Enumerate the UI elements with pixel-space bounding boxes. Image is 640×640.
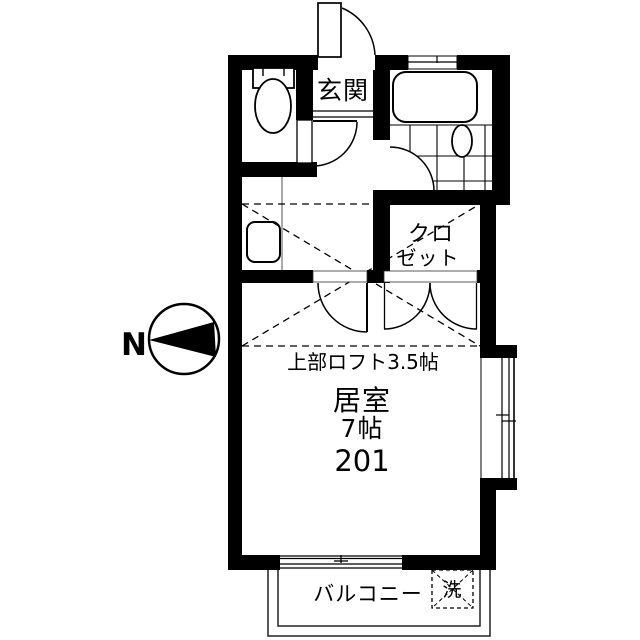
main-room-door-icon — [313, 271, 367, 332]
wall-main-right — [477, 270, 496, 283]
closet-doors-icon — [384, 271, 477, 329]
closet-label-line1: クロ — [408, 222, 454, 247]
wall-bay-stub-top — [480, 345, 517, 358]
compass-icon — [149, 304, 219, 374]
unit-number-label: 201 — [334, 444, 389, 478]
kitchen-sink-icon — [247, 222, 280, 262]
balcony-window-icon — [280, 555, 402, 570]
loft-label: 上部ロフト3.5帖 — [287, 350, 439, 374]
wall-bottom-right — [402, 555, 496, 570]
wall-top-right — [457, 55, 510, 70]
entrance-label: 玄関 — [317, 76, 369, 105]
wall-washroom-bottom — [373, 190, 510, 205]
wall-bottom-left — [228, 555, 280, 570]
wall-toilet-bottom — [228, 162, 317, 177]
wall-right-upper — [492, 70, 510, 205]
balcony-label: バルコニー — [313, 582, 423, 606]
sink-icon — [452, 125, 472, 157]
wall-toilet-hall — [296, 55, 313, 120]
wall-left — [228, 55, 242, 570]
compass-north-label: N — [121, 327, 147, 363]
entrance-step-line — [313, 111, 373, 117]
wall-hall-washroom — [373, 70, 390, 140]
bath-window-icon — [408, 56, 457, 69]
wall-main-left — [228, 270, 313, 283]
side-window-icon — [481, 358, 516, 478]
wall-bay-stub-bottom — [480, 478, 517, 490]
wall-top-mid — [375, 55, 408, 70]
toilet-door-icon — [297, 120, 312, 163]
room-size-label: 7帖 — [341, 414, 384, 443]
floor-plan: N 玄関 クロ ゼット 上部ロフト3.5帖 居室 7帖 201 バルコニー 洗 — [0, 0, 640, 640]
entrance-door-icon — [318, 3, 375, 57]
hall-corridor-door-icon — [313, 121, 357, 166]
toilet-icon — [253, 68, 294, 133]
bathtub-icon — [393, 72, 477, 122]
washroom-door-icon — [390, 147, 434, 191]
room-name-label: 居室 — [333, 384, 391, 417]
floor-plan-canvas: N 玄関 クロ ゼット 上部ロフト3.5帖 居室 7帖 201 バルコニー 洗 — [0, 0, 640, 640]
washer-label: 洗 — [442, 579, 461, 601]
closet-label-line2: ゼット — [397, 246, 460, 270]
